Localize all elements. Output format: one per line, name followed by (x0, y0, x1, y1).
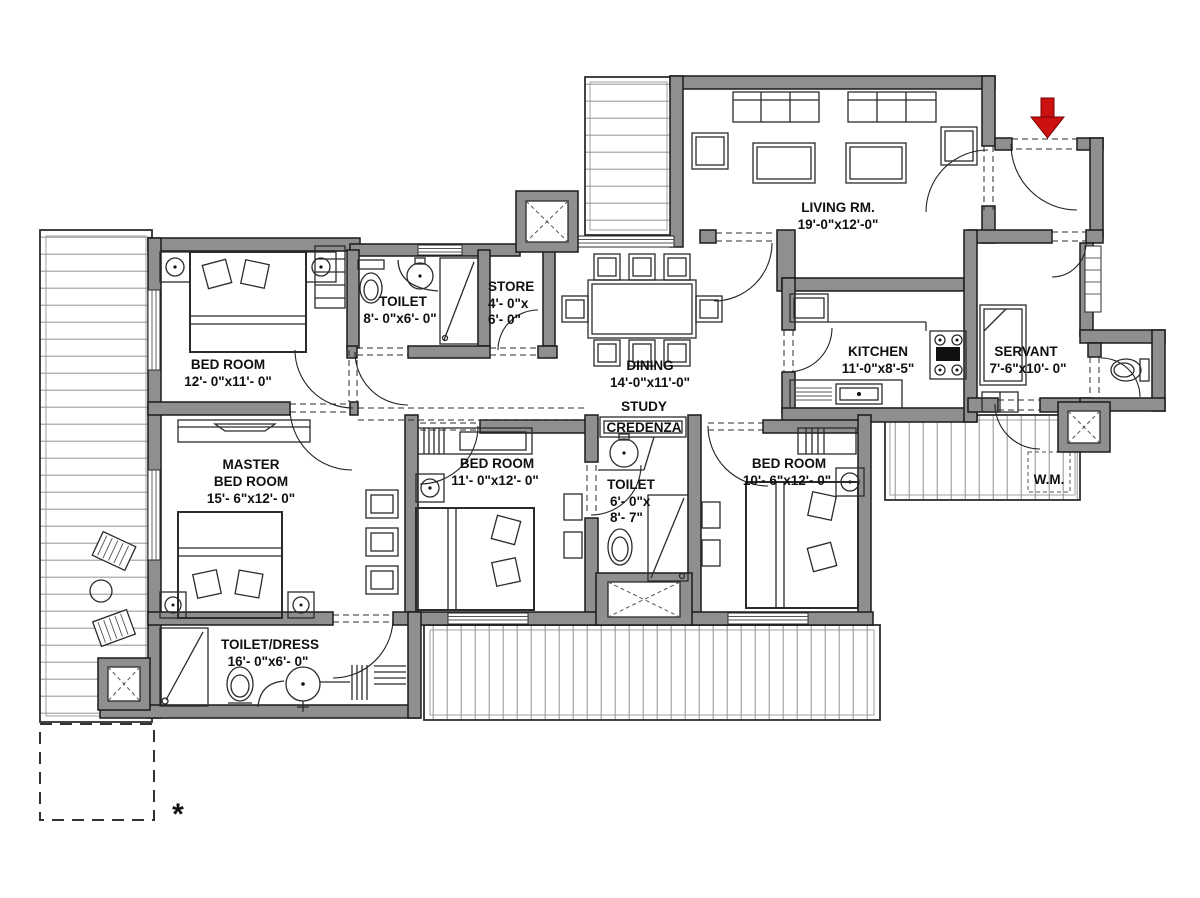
furniture-master (160, 420, 398, 618)
label-store-dims2: 6'- 0" (488, 312, 521, 327)
furniture-dining (562, 254, 722, 366)
label-living-dims: 19'-0"x12'-0" (798, 217, 879, 232)
label-living-name: LIVING RM. (801, 200, 875, 215)
label-dining-dims: 14'-0"x11'-0" (610, 375, 690, 390)
label-master-dims: 15'- 6"x12'- 0" (207, 491, 295, 506)
label-servant-dims: 7'-6"x10'- 0" (989, 361, 1066, 376)
label-master-line2: BED ROOM (214, 474, 288, 489)
floor-plan-canvas: LIVING RM. 19'-0"x12'-0" BED ROOM 12'- 0… (0, 0, 1200, 898)
label-bed2-dims: 11'- 0"x12'- 0" (451, 473, 539, 488)
label-store-dims1: 4'- 0"x (488, 296, 529, 311)
label-store-name: STORE (488, 279, 534, 294)
label-servant-name: SERVANT (994, 344, 1058, 359)
label-toilet2-name: TOILET (607, 477, 656, 492)
label-toilet1-dims: 8'- 0"x6'- 0" (363, 311, 436, 326)
label-bed2-name: BED ROOM (460, 456, 534, 471)
label-toilet2-dims2: 8'- 7" (610, 510, 643, 525)
entry-arrow-icon (1031, 98, 1064, 138)
utility-balcony (885, 415, 1080, 500)
label-bed1-name: BED ROOM (191, 357, 265, 372)
living-balcony-deck (585, 77, 672, 235)
label-toilet1-name: TOILET (379, 294, 428, 309)
bottom-balcony-deck (424, 625, 880, 720)
label-toilet-dress-name: TOILET/DRESS (221, 637, 319, 652)
label-dining-name: DINING (626, 358, 673, 373)
label-bed1-dims: 12'- 0"x11'- 0" (184, 374, 272, 389)
floor-plan-page: LIVING RM. 19'-0"x12'-0" BED ROOM 12'- 0… (0, 0, 1200, 898)
label-washing-machine: W.M. (1034, 472, 1065, 487)
future-extension-outline (40, 724, 154, 820)
label-study: STUDY (621, 399, 667, 414)
label-kitchen-dims: 11'-0"x8'-5" (842, 361, 915, 376)
left-balcony-deck (40, 230, 152, 722)
label-bed3-name: BED ROOM (752, 456, 826, 471)
label-toilet-dress-dims: 16'- 0"x6'- 0" (228, 654, 309, 669)
label-toilet2-dims1: 6'- 0"x (610, 494, 651, 509)
furniture-bed1 (160, 246, 345, 352)
furniture-bed3 (702, 428, 864, 608)
label-master-line1: MASTER (223, 457, 280, 472)
label-footnote-asterisk: * (172, 798, 184, 831)
label-credenza: CREDENZA (606, 420, 681, 435)
label-bed3-dims: 10'- 6"x12'- 0" (743, 473, 831, 488)
furniture-living (692, 92, 977, 183)
fixtures-servant-toilet (1111, 359, 1149, 381)
label-kitchen-name: KITCHEN (848, 344, 908, 359)
